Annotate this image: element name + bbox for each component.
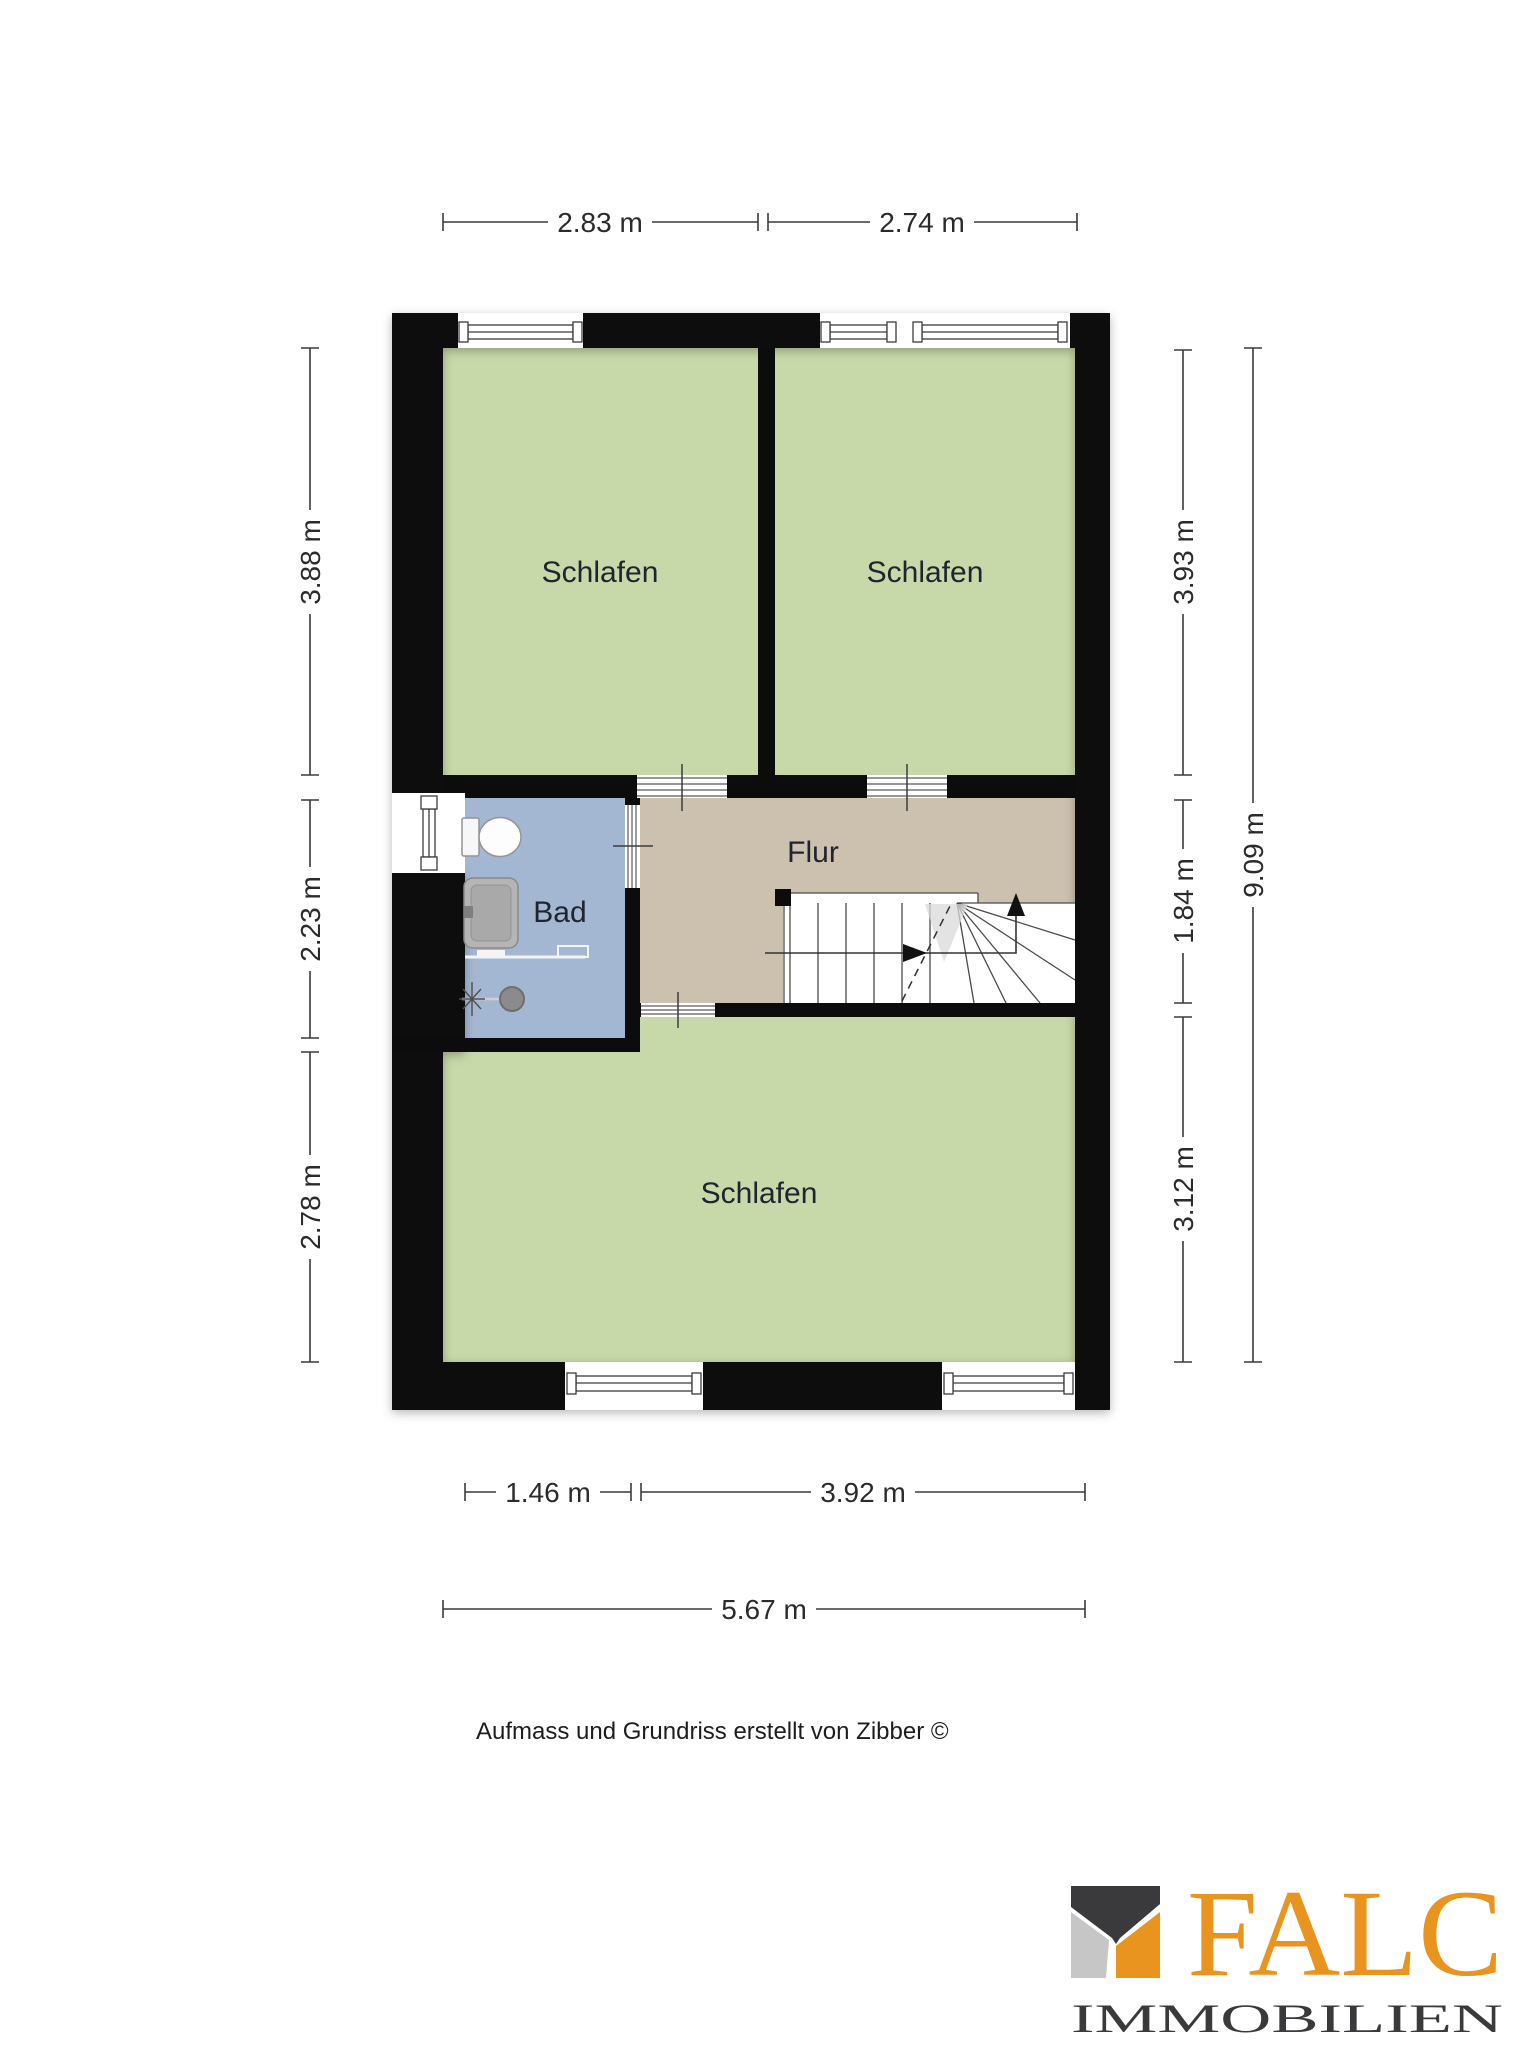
svg-text:2.23 m: 2.23 m: [295, 876, 326, 962]
toilet-icon: [462, 818, 521, 857]
dimension-right-overall: 9.09 m: [1235, 348, 1271, 1362]
staircase: [765, 889, 1075, 1003]
falc-logo-mark: [1071, 1886, 1160, 1978]
bathtub-icon: [464, 878, 518, 948]
svg-text:2.74 m: 2.74 m: [879, 207, 965, 238]
dimension-right-2: 1.84 m: [1165, 800, 1201, 1003]
svg-text:3.88 m: 3.88 m: [295, 519, 326, 605]
window-icon: [820, 313, 1070, 348]
bathtub-faucet: [464, 906, 473, 918]
logo-subtitle-text: IMMOBILIEN: [1071, 1996, 1503, 2041]
room-label: Schlafen: [542, 556, 659, 589]
svg-text:2.78 m: 2.78 m: [295, 1164, 326, 1250]
floor-plan-drawing: Schlafen Schlafen Bad Flur Schlafen 2.83…: [0, 0, 1536, 2048]
dimension-bottom-2: 3.92 m: [641, 1474, 1085, 1510]
stair-newel-post: [775, 889, 791, 906]
svg-text:3.92 m: 3.92 m: [820, 1477, 906, 1508]
wall-between-top-bedrooms: [758, 348, 775, 778]
falc-logo: FALC IMMOBILIEN: [1071, 1865, 1503, 2041]
svg-text:3.12 m: 3.12 m: [1168, 1146, 1199, 1232]
svg-text:9.09 m: 9.09 m: [1238, 812, 1269, 898]
dimension-left-2: 2.23 m: [292, 800, 328, 1038]
dimension-right-3: 3.12 m: [1165, 1017, 1201, 1362]
window-icon: [458, 313, 583, 348]
dimension-left-3: 2.78 m: [292, 1052, 328, 1362]
room-label: Flur: [787, 836, 839, 869]
window-icon: [942, 1362, 1075, 1410]
svg-text:2.83 m: 2.83 m: [557, 207, 643, 238]
dimension-left-1: 3.88 m: [292, 348, 328, 775]
caption-text: Aufmass und Grundriss erstellt von Zibbe…: [476, 1718, 949, 1745]
window-icon: [565, 1362, 703, 1410]
svg-text:1.46 m: 1.46 m: [505, 1477, 591, 1508]
svg-text:1.84 m: 1.84 m: [1168, 858, 1199, 944]
svg-text:5.67 m: 5.67 m: [721, 1594, 807, 1625]
window-icon: [392, 793, 465, 873]
dimension-bottom-overall: 5.67 m: [443, 1591, 1085, 1627]
room-label: Schlafen: [867, 556, 984, 589]
dimension-top-2: 2.74 m: [768, 204, 1077, 240]
wall-bath-to-bottom-bedroom: [392, 1038, 640, 1052]
room-label: Schlafen: [701, 1177, 818, 1210]
floor-plan-page: Schlafen Schlafen Bad Flur Schlafen 2.83…: [0, 0, 1536, 2048]
dimension-top-1: 2.83 m: [443, 204, 758, 240]
svg-text:3.93 m: 3.93 m: [1168, 519, 1199, 605]
dimension-right-1: 3.93 m: [1165, 350, 1201, 775]
room-label: Bad: [533, 896, 586, 929]
wall-top-rooms-to-hall: [443, 775, 1075, 798]
logo-brand-text: FALC: [1187, 1865, 1503, 2002]
dimension-bottom-1: 1.46 m: [465, 1474, 631, 1510]
